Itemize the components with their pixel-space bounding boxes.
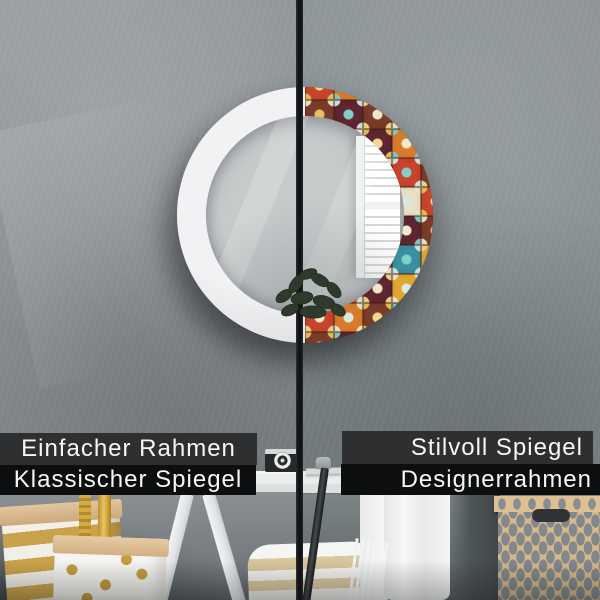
patchwork-tile bbox=[305, 87, 334, 100]
patchwork-tile bbox=[421, 100, 433, 129]
patchwork-tile bbox=[421, 245, 433, 274]
patchwork-tile bbox=[334, 87, 363, 100]
camera-lens bbox=[274, 452, 291, 469]
label-left-line1: Einfacher Rahmen bbox=[21, 435, 236, 463]
product-photo-split-mirror: Einfacher Rahmen Klassischer Spiegel Sti… bbox=[0, 0, 600, 600]
patchwork-tile bbox=[305, 332, 334, 343]
patchwork-tile bbox=[421, 187, 433, 216]
patchwork-tile bbox=[421, 87, 433, 100]
label-left-line2: Klassischer Spiegel bbox=[14, 466, 242, 494]
storage-box-handle bbox=[532, 509, 570, 522]
patchwork-tile bbox=[392, 332, 421, 343]
patchwork-tile bbox=[421, 158, 433, 187]
label-bar-left-top: Einfacher Rahmen bbox=[0, 433, 257, 465]
patchwork-tile bbox=[363, 332, 392, 343]
kraft-paper-fold bbox=[53, 535, 170, 557]
plant-prop bbox=[268, 262, 354, 320]
label-bar-right-top: Stilvoll Spiegel bbox=[342, 431, 593, 464]
patchwork-tile bbox=[421, 303, 433, 332]
patchwork-tile bbox=[421, 216, 433, 245]
patchwork-tile bbox=[421, 129, 433, 158]
label-bar-right-bottom: Designerrahmen bbox=[341, 464, 600, 495]
patchwork-tile bbox=[392, 87, 421, 100]
patchwork-tile bbox=[421, 274, 433, 303]
patchwork-tile bbox=[334, 332, 363, 343]
label-right-line1: Stilvoll Spiegel bbox=[411, 434, 583, 462]
label-right-line2: Designerrahmen bbox=[401, 466, 592, 494]
patchwork-tile bbox=[363, 87, 392, 100]
label-bar-left-bottom: Klassischer Spiegel bbox=[0, 465, 256, 495]
patchwork-tile bbox=[421, 332, 433, 343]
